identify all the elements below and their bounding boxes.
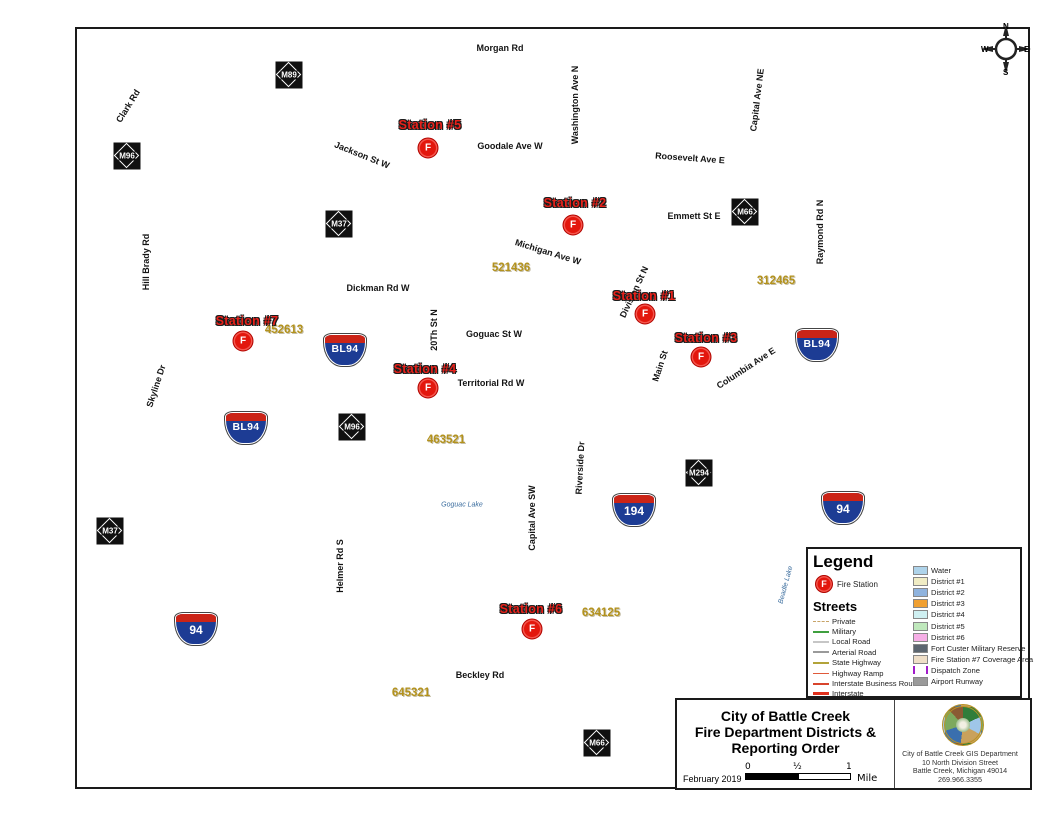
scale-unit: Mile <box>857 773 877 784</box>
dispatch-zone-swatch <box>913 666 928 674</box>
legend-street-label: Military <box>832 627 856 636</box>
route-shield-m37: M37 <box>97 518 124 545</box>
station-label: Station #6 <box>500 602 563 616</box>
legend-street-row: Interstate Business Route <box>813 678 913 688</box>
station-label: Station #7 <box>216 314 279 328</box>
reporting-order-code: 634125 <box>582 607 620 619</box>
road-label: Beckley Rd <box>456 670 505 680</box>
scale-bar: 0 ½ 1 Mile <box>745 762 865 786</box>
area-swatch <box>913 566 928 575</box>
legend-streets-list: PrivateMilitaryLocal RoadArterial RoadSt… <box>813 616 913 699</box>
street-swatch <box>813 673 829 674</box>
legend-street-row: Private <box>813 616 913 626</box>
reporting-order-code: 645321 <box>392 687 430 699</box>
title-block: City of Battle Creek Fire Department Dis… <box>675 698 1032 790</box>
road-label: Dickman Rd W <box>346 283 409 293</box>
legend-area-row: District #5 <box>913 620 1019 631</box>
legend-street-row: Highway Ramp <box>813 668 913 678</box>
legend-street-row: Arterial Road <box>813 647 913 657</box>
area-swatch <box>913 610 928 619</box>
station-label: Station #4 <box>394 362 457 376</box>
scale-zero: 0 <box>745 762 751 772</box>
fire-station-icon: F <box>815 575 833 593</box>
legend-panel: Legend F Fire Station Streets PrivateMil… <box>806 547 1022 698</box>
map-date: February 2019 <box>683 774 742 784</box>
legend-area-label: District #2 <box>931 588 965 597</box>
area-swatch <box>913 677 928 686</box>
scale-one: 1 <box>846 762 852 772</box>
road-label: Washington Ave N <box>570 66 580 145</box>
legend-street-row: Local Road <box>813 637 913 647</box>
route-shield-m37: M37 <box>326 211 353 238</box>
area-swatch <box>913 633 928 642</box>
legend-area-row: District #2 <box>913 587 1019 598</box>
area-swatch <box>913 655 928 664</box>
map-title-line2: Fire Department Districts & <box>677 724 894 740</box>
legend-fire-station-label: Fire Station <box>837 580 878 589</box>
station-label: Station #2 <box>544 196 607 210</box>
reporting-order-code: 463521 <box>427 434 465 446</box>
scale-half: ½ <box>793 762 802 772</box>
shield-red-band <box>176 614 216 622</box>
legend-street-row: Military <box>813 626 913 636</box>
legend-area-row: Fire Station #7 Coverage Area <box>913 654 1019 665</box>
street-swatch <box>813 631 829 633</box>
legend-street-label: Highway Ramp <box>832 669 884 678</box>
road-label: Helmer Rd S <box>335 539 345 593</box>
fire-station-marker: F <box>522 619 543 640</box>
area-swatch <box>913 622 928 631</box>
fire-station-marker: F <box>563 215 584 236</box>
legend-area-row: District #3 <box>913 598 1019 609</box>
route-shield-m66: M66 <box>732 199 759 226</box>
street-swatch <box>813 662 829 664</box>
legend-area-label: Fire Station #7 Coverage Area <box>931 655 1033 664</box>
legend-area-label: District #1 <box>931 577 965 586</box>
station-label: Station #3 <box>675 331 738 345</box>
legend-area-row: Water <box>913 565 1019 576</box>
road-label: Goodale Ave W <box>477 141 542 151</box>
legend-area-row: Fort Custer Military Reserve <box>913 643 1019 654</box>
legend-area-row: District #4 <box>913 609 1019 620</box>
fire-station-marker: F <box>691 347 712 368</box>
compass-w: W <box>981 45 989 54</box>
area-swatch <box>913 599 928 608</box>
gis-department-address: City of Battle Creek GIS Department10 No… <box>892 750 1028 784</box>
road-label: Capital Ave SW <box>527 485 537 550</box>
legend-street-label: Private <box>832 617 856 626</box>
fire-station-marker: F <box>233 331 254 352</box>
title-block-right: City of Battle Creek GIS Department10 No… <box>892 700 1030 788</box>
legend-street-label: Arterial Road <box>832 648 876 657</box>
route-shield-m96: M96 <box>114 143 141 170</box>
legend-streets-title: Streets <box>813 599 913 614</box>
area-swatch <box>913 588 928 597</box>
street-swatch <box>813 621 829 622</box>
station-label: Station #5 <box>399 118 462 132</box>
title-block-left: City of Battle Creek Fire Department Dis… <box>677 700 895 788</box>
legend-area-label: Dispatch Zone <box>931 666 980 675</box>
fire-station-marker: F <box>418 378 439 399</box>
legend-street-label: Interstate Business Route <box>832 679 919 688</box>
road-label: Goguac St W <box>466 329 522 339</box>
legend-area-label: Airport Runway <box>931 677 983 686</box>
legend-area-row: District #1 <box>913 576 1019 587</box>
street-swatch <box>813 683 829 685</box>
reporting-order-code: 521436 <box>492 262 530 274</box>
fire-station-marker: F <box>635 304 656 325</box>
route-shield-m66: M66 <box>584 730 611 757</box>
legend-area-label: District #4 <box>931 610 965 619</box>
shield-red-band <box>614 495 654 503</box>
compass-s: S <box>1003 68 1008 77</box>
map-document: Morgan RdClark RdJackson St WGoodale Ave… <box>0 0 1056 816</box>
legend-area-label: District #5 <box>931 622 965 631</box>
legend-area-row: Airport Runway <box>913 676 1019 687</box>
street-swatch <box>813 692 829 695</box>
org-address-line: 269.966.3355 <box>892 776 1028 785</box>
legend-area-label: Water <box>931 566 951 575</box>
station-label: Station #1 <box>613 289 676 303</box>
legend-street-row: State Highway <box>813 658 913 668</box>
legend-area-label: District #3 <box>931 599 965 608</box>
street-swatch <box>813 651 829 653</box>
legend-areas-list: WaterDistrict #1District #2District #3Di… <box>913 565 1019 699</box>
road-label: 20Th St N <box>429 309 439 351</box>
compass-e: E <box>1024 45 1029 54</box>
route-shield-m294: M294 <box>686 460 713 487</box>
route-shield-m89: M89 <box>276 62 303 89</box>
area-swatch <box>913 644 928 653</box>
shield-red-band <box>823 493 863 501</box>
road-label: Emmett St E <box>667 211 720 221</box>
scale-bar-graphic <box>745 773 851 780</box>
street-swatch <box>813 641 829 643</box>
lake-label: Goguac Lake <box>441 502 483 509</box>
map-title-line1: City of Battle Creek <box>677 708 894 724</box>
road-label: Territorial Rd W <box>458 378 525 388</box>
road-label: Hill Brady Rd <box>141 234 151 291</box>
compass-n: N <box>1003 22 1009 31</box>
route-shield-m96: M96 <box>339 414 366 441</box>
legend-street-label: State Highway <box>832 658 881 667</box>
fire-station-marker: F <box>418 138 439 159</box>
legend-area-label: Fort Custer Military Reserve <box>931 644 1026 653</box>
reporting-order-code: 312465 <box>757 275 795 287</box>
map-title-line3: Reporting Order <box>677 740 894 756</box>
area-swatch <box>913 577 928 586</box>
city-seal-logo <box>942 704 984 746</box>
legend-street-label: Local Road <box>832 637 870 646</box>
road-label: Raymond Rd N <box>815 200 825 265</box>
legend-area-row: District #6 <box>913 632 1019 643</box>
road-label: Morgan Rd <box>477 43 524 53</box>
legend-area-label: District #6 <box>931 633 965 642</box>
legend-area-row: Dispatch Zone <box>913 665 1019 676</box>
